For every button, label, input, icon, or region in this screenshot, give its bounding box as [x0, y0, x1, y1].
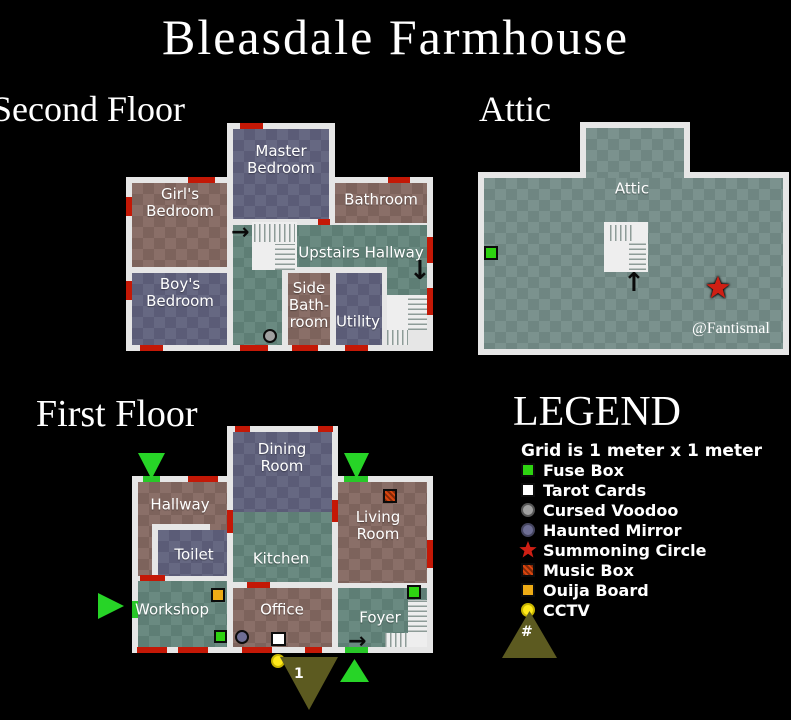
music-box-icon	[521, 563, 535, 577]
camera-view-triangle	[280, 657, 338, 710]
room-label: Side Bath- room	[289, 280, 329, 330]
door-marker-red	[227, 510, 233, 533]
door-marker-red	[242, 647, 272, 653]
door-marker-red	[126, 281, 132, 300]
door-marker-red	[427, 540, 433, 568]
door-marker-red	[140, 575, 165, 581]
legend-title: LEGEND	[513, 388, 681, 436]
ouija-board-icon	[521, 583, 535, 597]
door-marker-red	[140, 345, 163, 351]
room-label: Workshop	[135, 602, 209, 619]
legend-item-label: Music Box	[543, 561, 634, 580]
stairs	[254, 224, 295, 242]
door-marker-red	[188, 476, 218, 482]
stairs	[408, 632, 427, 647]
legend-item-label: Fuse Box	[543, 461, 624, 480]
first-floor-label: First Floor	[36, 392, 198, 436]
door-marker-red	[240, 345, 268, 351]
tarot-cards-icon	[521, 483, 535, 497]
door-marker-red	[235, 426, 250, 432]
room-label: Hallway	[150, 497, 209, 514]
entrance-triangle-icon	[340, 659, 369, 682]
legend-item-label: CCTV	[543, 601, 590, 620]
fuse-box-icon	[484, 246, 498, 260]
door-marker-red	[305, 647, 322, 653]
entrance-triangle-icon	[98, 593, 124, 619]
room-label: Foyer	[359, 610, 401, 627]
room-label: Upstairs Hallway	[298, 245, 423, 262]
room-utility	[336, 273, 382, 345]
room-attic	[586, 128, 684, 178]
tarot-cards-icon	[271, 632, 286, 646]
stairs	[629, 243, 646, 270]
second-floor-label: Second Floor	[0, 88, 185, 130]
arrow-right-icon: →	[348, 631, 366, 653]
haunted-mirror-icon	[235, 630, 249, 644]
cursed-voodoo-icon	[521, 503, 535, 517]
room-label: Utility	[336, 314, 380, 331]
room-label: Kitchen	[253, 551, 309, 568]
cursed-voodoo-icon	[263, 329, 277, 343]
door-marker-red	[247, 582, 270, 588]
room-label: Girl's Bedroom	[146, 186, 214, 220]
legend-item-label: Tarot Cards	[543, 481, 646, 500]
page-title: Bleasdale Farmhouse	[162, 8, 629, 66]
summoning-circle-icon	[706, 276, 730, 300]
camera-symbol: #	[521, 624, 533, 640]
camera-number: 1	[294, 666, 304, 682]
door-marker-red	[126, 197, 132, 216]
door-marker-red	[318, 219, 330, 225]
door-marker-red	[137, 647, 167, 653]
legend-item-label: Haunted Mirror	[543, 521, 682, 540]
fuse-box-icon	[521, 463, 535, 477]
door-marker-red	[292, 345, 318, 351]
legend-item-label: Cursed Voodoo	[543, 501, 678, 520]
stairs	[408, 295, 427, 330]
arrow-right-icon: →	[231, 222, 249, 244]
stairs	[387, 330, 408, 345]
music-box-icon	[383, 489, 397, 503]
map-canvas: Bleasdale Farmhouse Second Floor Attic F…	[0, 0, 791, 720]
room-label: Boy's Bedroom	[146, 276, 214, 310]
door-marker-red	[240, 123, 263, 129]
door-marker-red	[188, 177, 215, 183]
stairs	[408, 600, 427, 632]
room-kitchen	[233, 512, 332, 582]
stairs	[610, 225, 632, 241]
watermark: @Fantismal	[692, 320, 770, 338]
door-marker-red	[427, 288, 433, 315]
arrow-up-icon: ↑	[623, 270, 645, 296]
door-marker-red	[345, 345, 368, 351]
room-label: Office	[260, 602, 304, 619]
attic-section-label: Attic	[479, 88, 551, 130]
fuse-box-icon	[407, 585, 421, 599]
haunted-mirror-icon	[521, 523, 535, 537]
door-marker-red	[178, 647, 208, 653]
door-marker-red	[332, 500, 338, 522]
room-label: Master Bedroom	[247, 143, 315, 177]
room-label: Living Room	[356, 509, 401, 543]
legend-grid-note: Grid is 1 meter x 1 meter	[521, 441, 762, 461]
room-label: Dining Room	[258, 441, 306, 475]
arrow-down-icon: ↓	[409, 258, 431, 284]
fuse-box-icon	[214, 630, 227, 643]
legend-item-label: Summoning Circle	[543, 541, 706, 560]
summoning-circle-icon	[519, 541, 537, 559]
legend-item-label: Ouija Board	[543, 581, 649, 600]
room-label: Toilet	[174, 547, 213, 564]
stairs	[275, 244, 295, 270]
room-label: Bathroom	[344, 192, 418, 209]
stairs	[385, 633, 408, 647]
ouija-board-icon	[211, 588, 225, 602]
room-label: Attic	[615, 181, 649, 198]
door-marker-red	[318, 426, 333, 432]
door-marker-red	[388, 177, 410, 183]
